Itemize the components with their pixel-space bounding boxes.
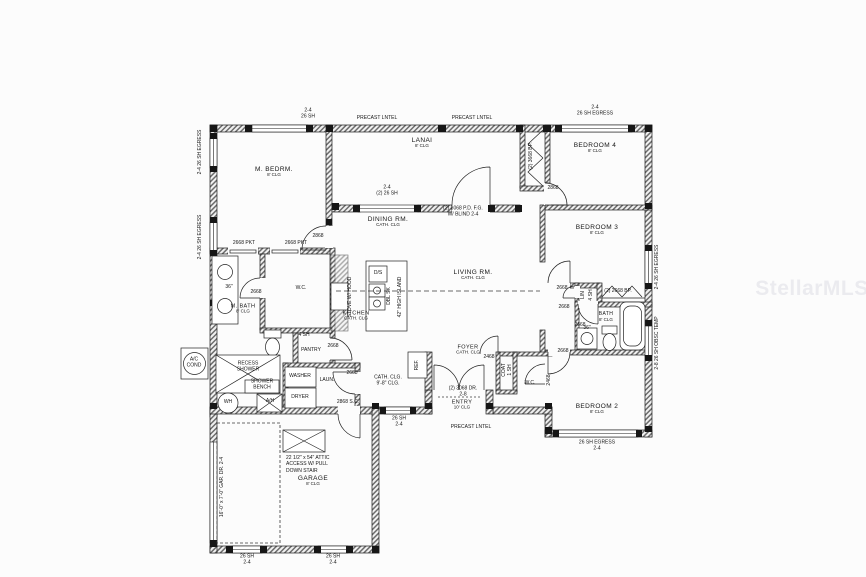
door-label-laundry: 2668 — [346, 371, 357, 377]
room-label-pantry: PANTRY — [301, 348, 321, 354]
door-label-pocket-2: 2668 PKT — [285, 241, 307, 247]
recess-shower-label: RECESSSHOWER — [237, 361, 260, 373]
stellar-mls-watermark: StellarMLS — [755, 277, 866, 301]
room-label-foyer: FOYERCATH. CLG — [456, 345, 480, 356]
room-label-wc-master: W.C. — [296, 286, 307, 292]
dbl-sink-label: DBL SK — [387, 287, 393, 305]
door-label-entry: (2) 3068 DR.2-8 — [449, 386, 478, 398]
dishwasher-label: D/S — [374, 271, 382, 277]
window-label-bedroom4: 2-426 SH EGRESS — [577, 105, 613, 117]
stove-label: STOVE W/ HOOD — [348, 277, 354, 318]
lintel-label: PRECAST LNTEL — [452, 116, 492, 122]
room-label-bedroom2: BEDROOM 28' CLG — [576, 403, 619, 415]
air-handler-label: A/H — [266, 399, 274, 405]
pantry-shelf-label: 4 SH — [298, 333, 309, 339]
water-heater-label: WH — [224, 400, 232, 406]
door-label-bedroom3: 2668 — [556, 286, 567, 292]
room-label-laundry: LAUN. — [320, 378, 335, 384]
garage-door-track — [217, 423, 280, 543]
master-toilet — [264, 330, 281, 356]
fridge-label: REF. — [415, 360, 421, 371]
room-label-living: LIVING RM.CATH. CLG — [453, 269, 492, 281]
window-label-garage-1: 26 SH2-4 — [240, 554, 254, 566]
room-label-bedroom3: BEDROOM 38' CLG — [576, 224, 619, 236]
door-label-coat: 2468 — [483, 355, 494, 361]
room-label-garage: GARAGE8' CLG — [298, 475, 328, 487]
floorplan-sheet: PRECAST LNTEL PRECAST LNTEL 2-426 SH 2-4… — [0, 0, 866, 577]
shower-bench-label: SHOWERBENCH — [251, 379, 274, 391]
room-label-wc-bed2: W.C. — [525, 381, 536, 387]
door-label-patio: (2) 3068 P.D. F.G.W/ BLIND 2-4 — [443, 206, 483, 218]
bath-vanity-label: 36" — [583, 326, 590, 332]
room-label-bath: BATH8' CLG — [599, 312, 614, 322]
attic-access — [283, 430, 325, 452]
door-label-m-wc: 2668 — [250, 290, 261, 296]
coat-shelf-label: 1 SH — [508, 364, 514, 375]
window-label-bedroom3: 2-4 26 SH EGRESS — [655, 245, 661, 290]
master-vanity-label: 36" — [225, 285, 232, 291]
island-label: 42" HIGH ISLAND — [398, 277, 404, 318]
door-label-bedroom3-closet: (2) 2668 BP. — [604, 289, 631, 295]
window-label-bath: 2-8 26 SH OBSC TEMP — [655, 316, 661, 369]
room-label-bedroom4: BEDROOM 48' CLG — [574, 142, 617, 154]
window-label-mbedrm-top: 2-426 SH — [301, 108, 315, 120]
door-label-bedroom2: 2668 — [557, 349, 568, 355]
door-label-bedroom4-closet: (2) 3668 BP. — [529, 142, 535, 169]
lintel-label: PRECAST LNTEL — [357, 116, 397, 122]
floorplan-drawing — [0, 0, 866, 577]
bath-tub — [620, 302, 645, 350]
linen-shelf-label: 4 SH — [589, 289, 595, 300]
room-label-lanai: LANAI8' CLG — [412, 137, 433, 149]
window-label-garage-2: 26 SH2-4 — [326, 554, 340, 566]
dryer-label: DRYER — [291, 395, 308, 401]
door-label-pocket-1: 2668 PKT — [233, 241, 255, 247]
ac-cond-label: A/CCOND — [187, 357, 202, 369]
window-label-left-1: 2-4 26 SH EGRESS — [198, 130, 204, 175]
room-label-entry: ENTRY10' CLG — [452, 400, 473, 411]
door-label-wc-bed2: 2468 — [547, 374, 553, 385]
door-label-garage-sc: 2868 S.C. — [337, 400, 359, 406]
attic-note: 22 1/2" x 54" ATTICACCESS W/ PULLDOWN ST… — [286, 455, 329, 474]
washer-label: WASHER — [289, 374, 311, 380]
room-label-m-bath: M. BATH8' CLG — [231, 304, 256, 315]
room-label-m-bedrm: M. BEDRM.8' CLG — [255, 166, 293, 178]
door-label-linen: 2668 — [558, 305, 569, 311]
hall-ceiling-note: CATH. CLG.9'-8" CLG. — [374, 375, 402, 387]
linen-label: LIN — [581, 291, 587, 299]
bath-toilet — [602, 326, 617, 351]
window-label-hall: 26 SH2-4 — [392, 416, 406, 428]
window-label-lanai: 2-4(2) 26 SH — [376, 185, 397, 197]
room-label-dining: DINING RM.CATH. CLG — [368, 216, 408, 228]
stove — [331, 283, 348, 310]
lintel-label-entry: PRECAST LNTEL — [451, 425, 491, 431]
window-label-left-2: 2-4 26 SH EGRESS — [198, 215, 204, 260]
door-label-pantry: 2668 — [327, 344, 338, 350]
door-label-garage-door: 16'-0" x 7'-0" GAR. DR. 2-4 — [220, 457, 226, 517]
window-label-bedroom2: 26 SH EGRESS2-4 — [579, 440, 615, 452]
door-label-bedroom4: 2868 — [547, 186, 558, 192]
door-label-m-bedrm: 2868 — [312, 234, 323, 240]
